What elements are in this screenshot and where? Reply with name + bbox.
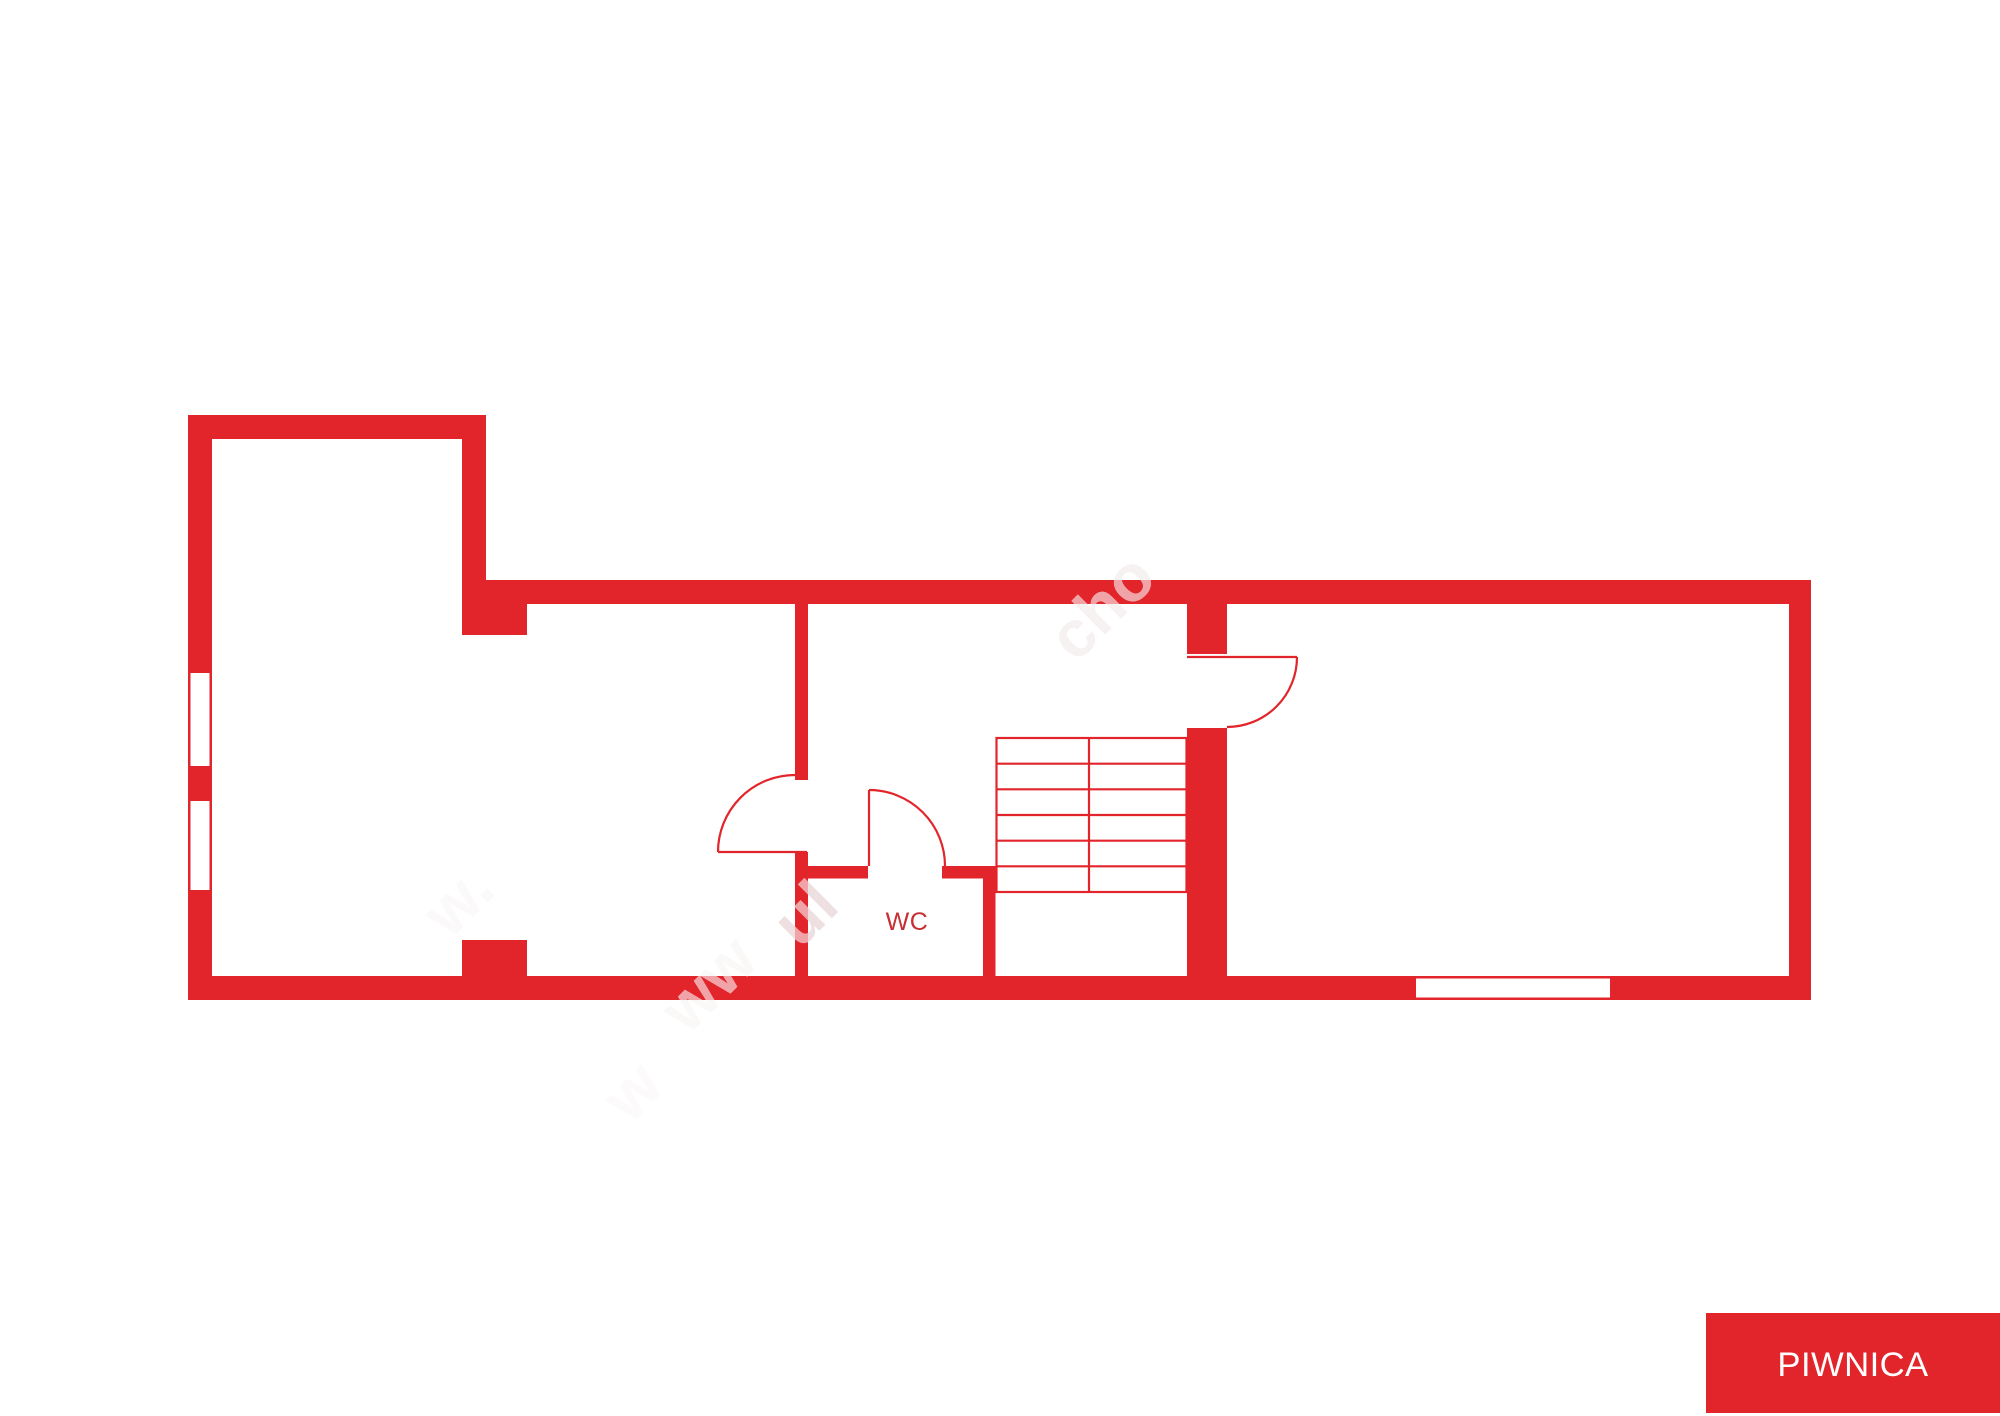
svg-text:PIWNICA: PIWNICA [1777,1346,1929,1384]
svg-text:WC: WC [886,908,929,936]
